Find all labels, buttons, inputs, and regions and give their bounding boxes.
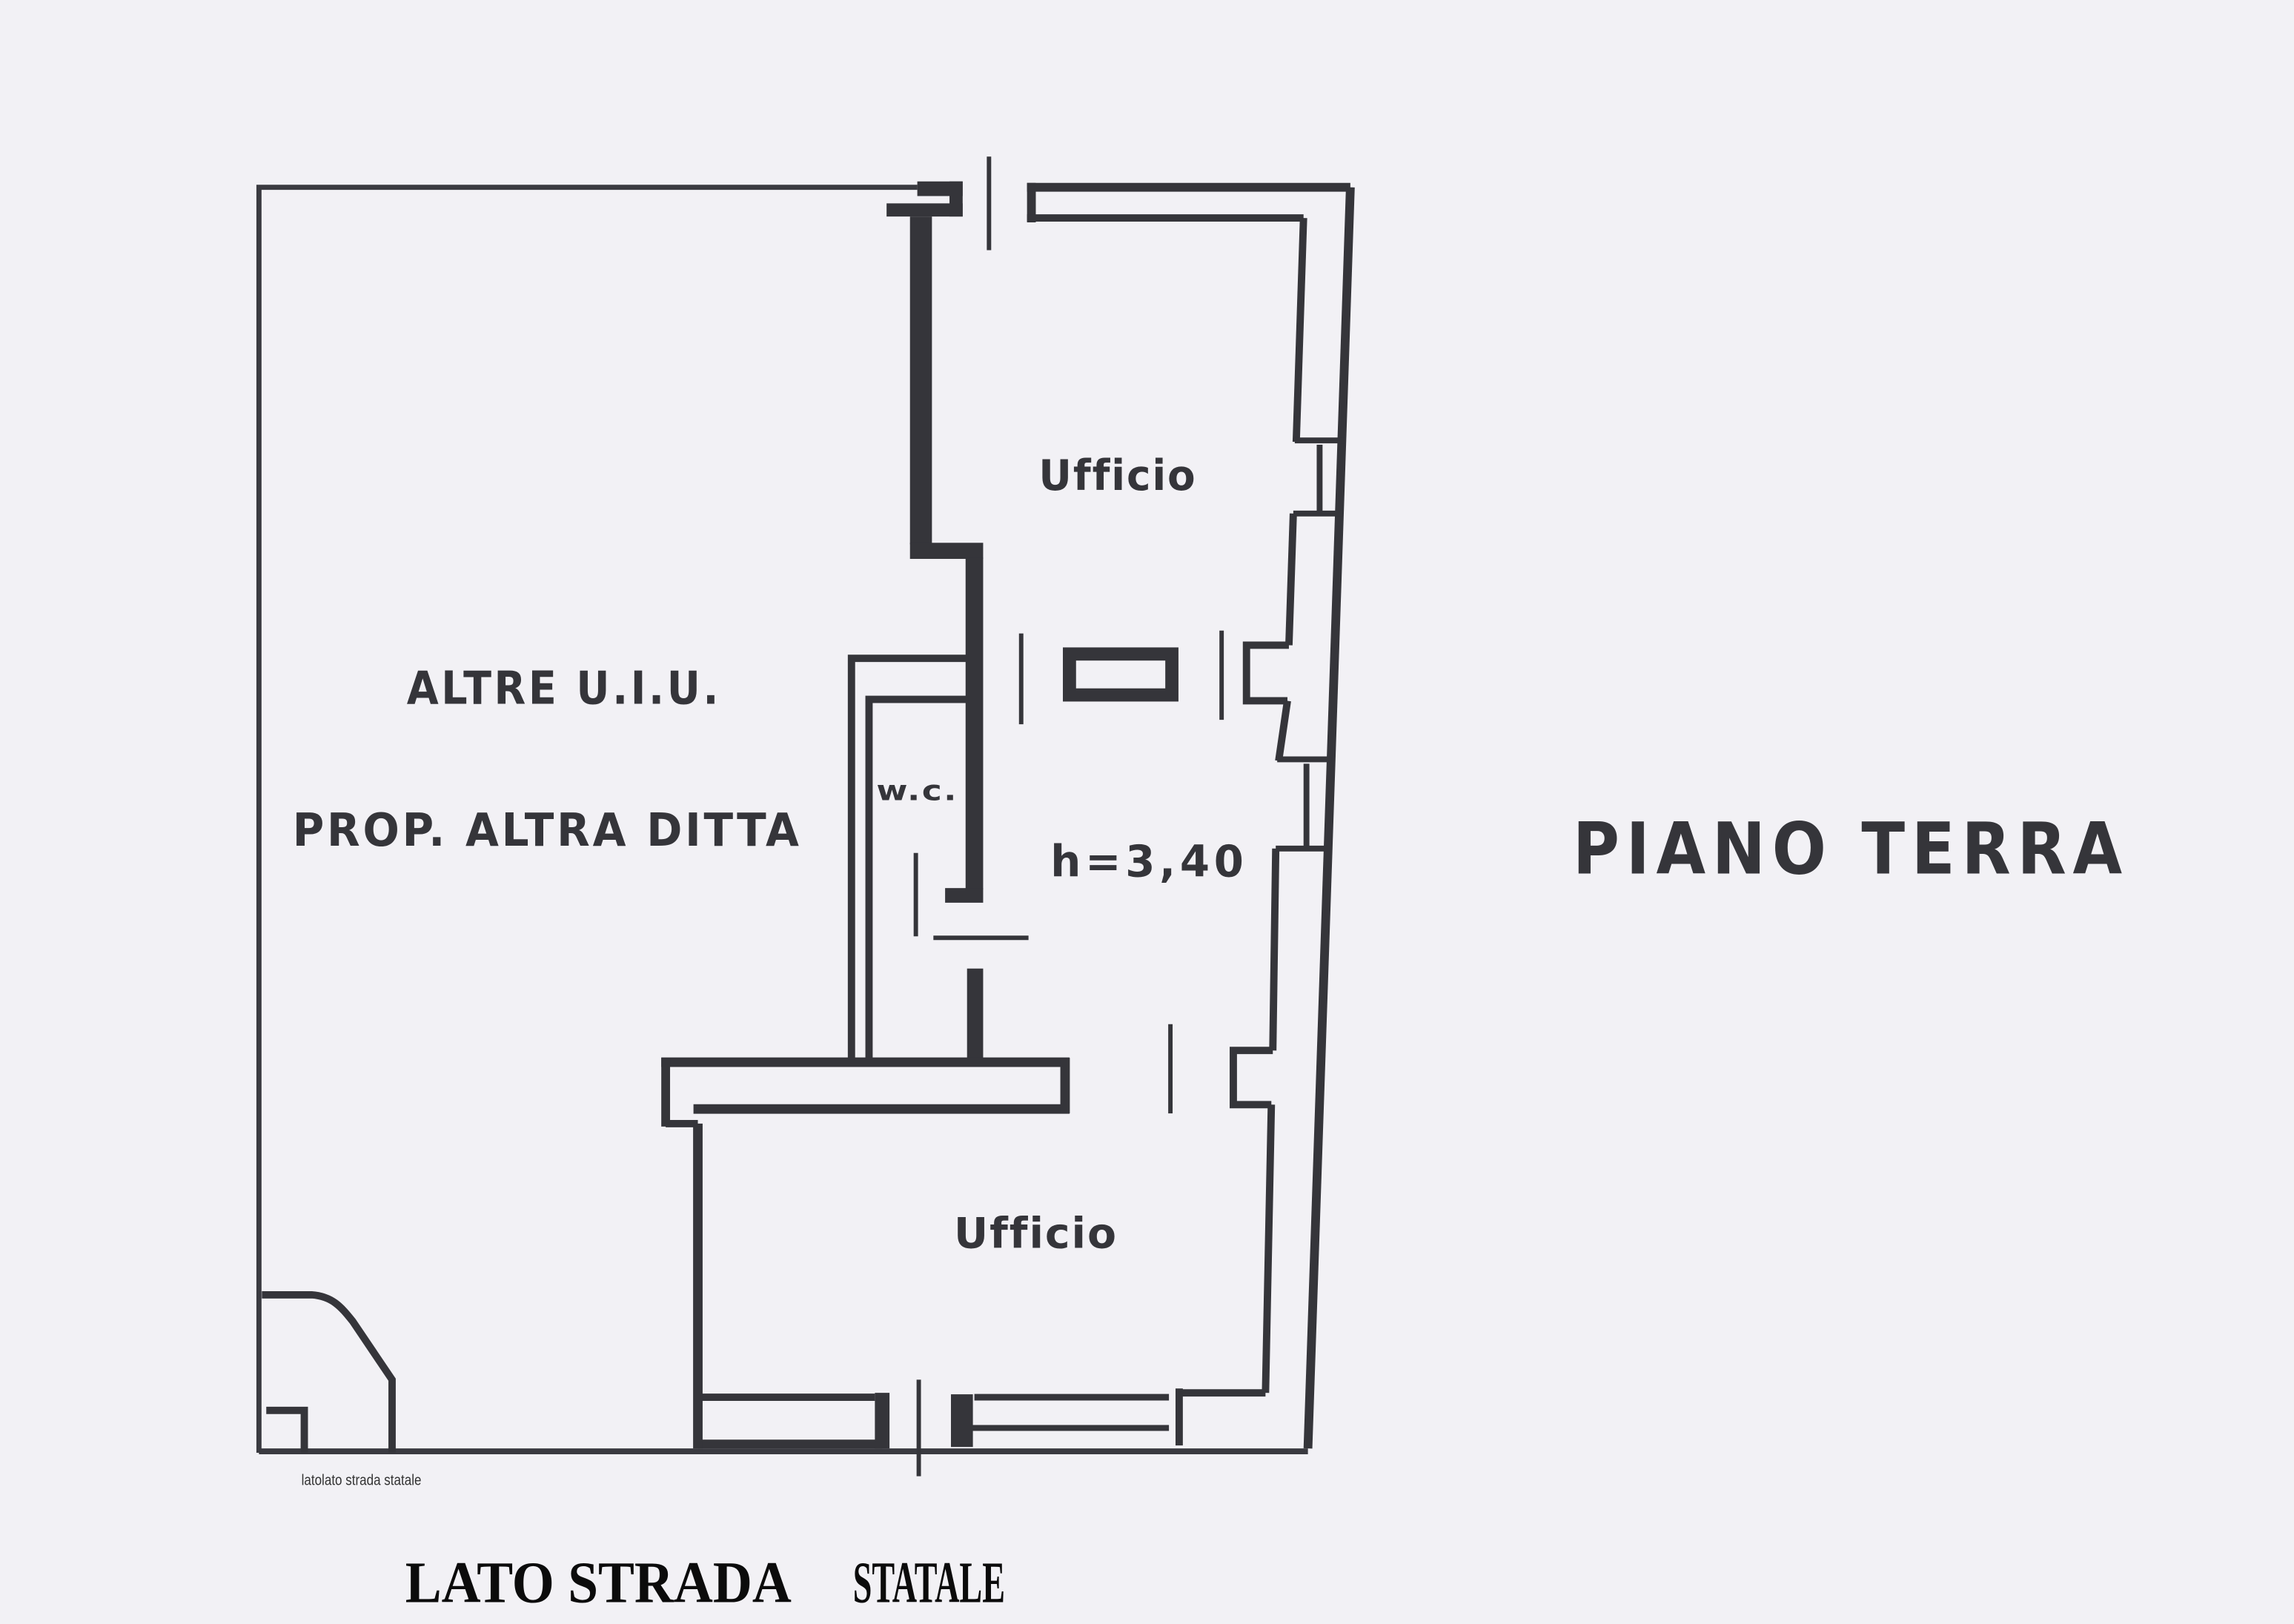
- floor-plan-drawing: Ufficio ALTRE U.I.U. PROP. ALTRA DITTA w…: [0, 0, 2294, 1624]
- caption-street-small: latolato strada statale: [302, 1471, 422, 1488]
- caption-statale: STATALE: [853, 1551, 1005, 1615]
- note-altre-uiu: ALTRE U.I.U.: [407, 662, 721, 715]
- note-prop-altra-ditta: PROP. ALTRA DITTA: [293, 804, 802, 857]
- bottom-door-left-jamb: [875, 1393, 889, 1448]
- right-wall-inner-d: [1273, 849, 1276, 1050]
- caption-lato-strada: LATO STRADA: [405, 1551, 792, 1615]
- spine-wall-jog: [910, 543, 984, 559]
- room-label-wc: w.c.: [876, 775, 958, 807]
- right-wall-inner-b: [1289, 514, 1293, 646]
- title-piano-terra: PIANO TERRA: [1573, 806, 2129, 890]
- note-height: h=3,40: [1050, 835, 1247, 886]
- room-label-ufficio-bottom: Ufficio: [954, 1210, 1118, 1259]
- scanned-floor-plan-page: Ufficio ALTRE U.I.U. PROP. ALTRA DITTA w…: [0, 0, 2294, 1624]
- spine-wall-foot: [945, 888, 983, 903]
- spine-wall-upper: [910, 216, 932, 544]
- room-label-ufficio-top: Ufficio: [1038, 451, 1196, 500]
- spine-top-step-lower: [886, 203, 963, 216]
- spine-wall-mid: [966, 557, 984, 889]
- bottom-window-left-jamb: [951, 1394, 973, 1447]
- spine-wall-lower: [967, 969, 984, 1059]
